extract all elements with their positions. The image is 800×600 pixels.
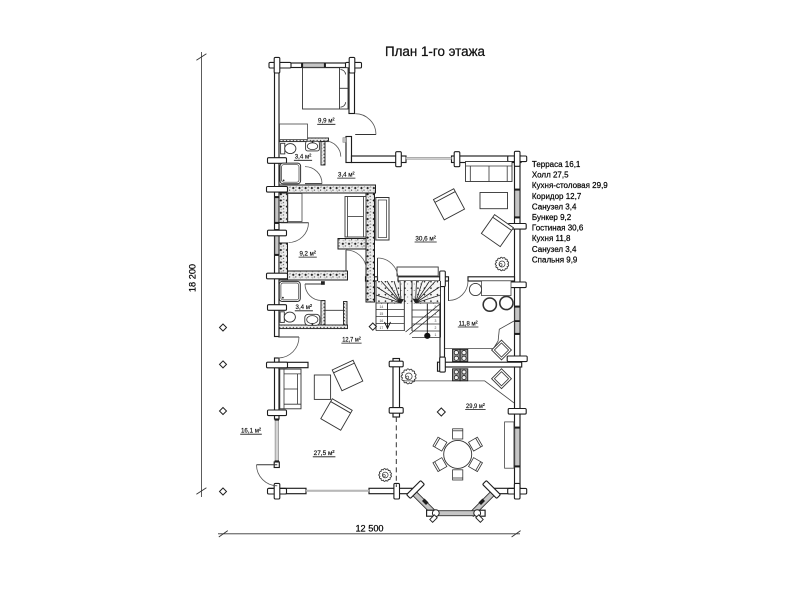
svg-text:16: 16 [380,319,384,323]
svg-text:Холл 27,5: Холл 27,5 [532,171,569,180]
svg-text:16,1 м²: 16,1 м² [241,428,262,435]
svg-text:Бункер 9,2: Бункер 9,2 [532,213,572,222]
svg-text:Санузел 3,4: Санузел 3,4 [532,245,577,254]
svg-text:11,8 м²: 11,8 м² [459,320,479,327]
svg-text:Спальня 9,9: Спальня 9,9 [532,256,578,265]
svg-text:3: 3 [435,319,437,323]
svg-text:29,9 м²: 29,9 м² [466,403,485,410]
svg-text:27,5 м²: 27,5 м² [314,450,336,457]
svg-text:1: 1 [435,333,437,337]
svg-text:Коридор 12,7: Коридор 12,7 [532,192,582,201]
svg-text:12,7 м²: 12,7 м² [342,337,361,344]
svg-text:12 500: 12 500 [355,524,383,534]
svg-text:14: 14 [380,305,384,309]
svg-text:3,4 м²: 3,4 м² [296,304,313,311]
svg-text:5: 5 [435,305,437,309]
svg-text:Гостиная 30,6: Гостиная 30,6 [532,224,584,233]
svg-text:3,4 м²: 3,4 м² [338,172,355,179]
svg-text:18 200: 18 200 [188,264,198,292]
svg-text:9,9 м²: 9,9 м² [318,118,335,125]
svg-text:Терраса 16,1: Терраса 16,1 [532,160,581,169]
svg-text:4: 4 [435,312,437,316]
svg-text:2: 2 [435,326,437,330]
svg-text:Санузел 3,4: Санузел 3,4 [532,202,577,211]
svg-text:30,6 м²: 30,6 м² [415,235,436,242]
svg-text:17: 17 [380,326,384,330]
svg-text:Кухня-столовая 29,9: Кухня-столовая 29,9 [532,181,608,190]
svg-text:3,4 м²: 3,4 м² [295,154,312,161]
svg-text:Кухня 11,8: Кухня 11,8 [532,234,571,243]
svg-text:15: 15 [380,312,384,316]
svg-text:9,2 м²: 9,2 м² [299,251,316,258]
svg-text:План 1-го этажа: План 1-го этажа [385,44,486,59]
